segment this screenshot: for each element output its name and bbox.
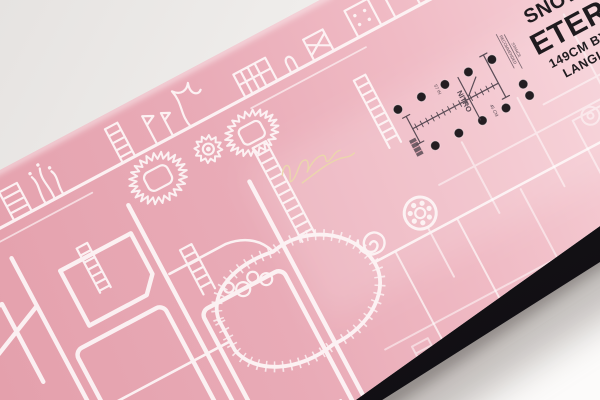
corner-doodles xyxy=(578,75,600,168)
donut-plaza xyxy=(399,191,442,234)
product-photo: NITRO 57 IN 45 CM RECOMMENDED STANCE SNO… xyxy=(0,0,600,400)
insert-hole xyxy=(517,78,530,91)
hatched-blob xyxy=(202,210,401,388)
signature-script xyxy=(279,135,355,190)
stance-diagram: NITRO 57 IN 45 CM RECOMMENDED STANCE xyxy=(384,28,542,158)
insert-hole xyxy=(462,66,475,79)
board-title: SNOWBOARDS ETERNAL 149CM BY HAILEY LANGL… xyxy=(514,0,600,88)
insert-hole xyxy=(486,53,499,66)
map-parcels xyxy=(0,121,436,400)
insert-hole xyxy=(523,89,536,102)
ladder-track xyxy=(253,141,316,242)
stance-label-right: 45 CM xyxy=(489,103,500,117)
insert-hole xyxy=(392,103,405,116)
insert-hole xyxy=(453,127,466,140)
insert-hole xyxy=(429,139,442,152)
splat xyxy=(217,100,287,165)
ladder-track xyxy=(77,243,111,293)
ladder-track xyxy=(105,123,135,163)
insert-hole xyxy=(500,102,513,115)
insert-hole xyxy=(415,91,428,104)
spiral xyxy=(356,229,388,259)
